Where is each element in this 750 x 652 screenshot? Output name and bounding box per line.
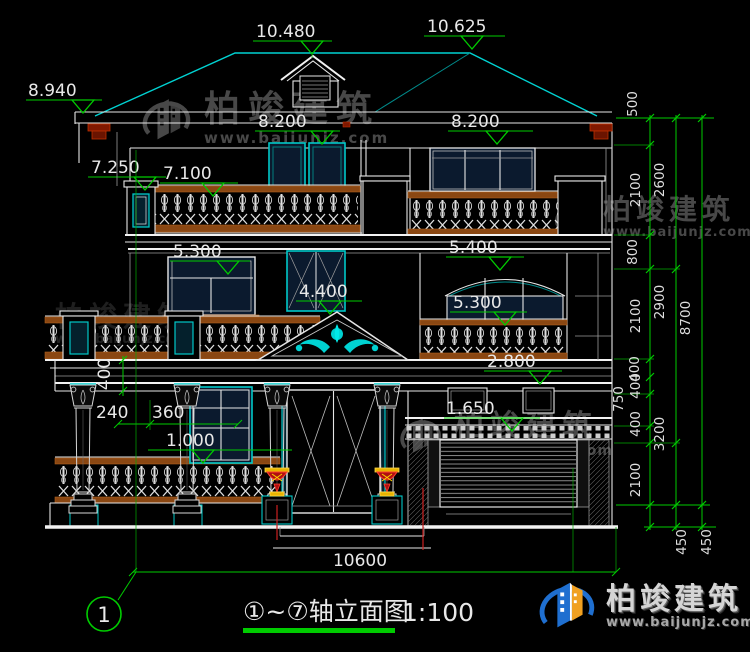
right-dimension-chains: 500 2100 800 2100 400 400 750 400 2100 2… [611, 91, 716, 555]
dim-label: 400 [628, 411, 644, 437]
dim-label: 450 [674, 529, 690, 555]
svg-text:10.625: 10.625 [427, 17, 486, 37]
balcony-door-right [309, 143, 345, 189]
third-floor-window [430, 148, 535, 192]
dim-label: 400 [628, 373, 644, 399]
garage-pilaster-right [589, 440, 609, 527]
level-f3-right: 8.200 [448, 112, 533, 144]
drawing-scale: 1:100 [402, 598, 474, 627]
dormer [281, 56, 345, 107]
dim-label: 450 [699, 529, 715, 555]
level-f2-right-top: 5.400 [446, 238, 524, 270]
svg-text:400: 400 [95, 358, 115, 390]
garage-section [405, 253, 612, 527]
svg-text:5.300: 5.300 [173, 242, 222, 262]
dim-label-total: 8700 [678, 301, 694, 335]
svg-text:5.300: 5.300 [453, 293, 502, 313]
dim-label: 2600 [652, 163, 668, 197]
company-name: 柏竣建筑 [606, 584, 750, 616]
dim-label: 2100 [628, 299, 644, 333]
balcony-pillar-3f-left [124, 181, 158, 235]
balcony-pillar-3f-right [555, 176, 605, 235]
balcony-door-left [269, 143, 305, 189]
title-underline [243, 628, 395, 633]
eave-corbel-right [590, 124, 612, 139]
svg-text:2.800: 2.800 [487, 352, 536, 372]
svg-text:8.940: 8.940 [28, 81, 77, 101]
svg-text:8.200: 8.200 [451, 112, 500, 132]
balcony-railing-3f-left [128, 185, 362, 233]
first-floor-window [190, 387, 252, 463]
svg-text:7.250: 7.250 [91, 158, 140, 178]
svg-text:5.400: 5.400 [449, 238, 498, 258]
cad-elevation-sheet: { "colors": { "background": "#000000", "… [0, 0, 750, 652]
drawing-title: ①~⑦轴立面图 [243, 597, 409, 626]
dim-label: 500 [625, 91, 641, 117]
entrance-door [282, 390, 385, 513]
level-top-right: 10.625 [424, 17, 505, 49]
balcony-pillar-2f-b [165, 311, 203, 360]
entrance-steps [273, 527, 431, 548]
eave-corbel-center [343, 122, 350, 127]
company-url: www.baijunjz.com [606, 615, 750, 630]
garage-cornice [405, 418, 612, 439]
svg-text:1.650: 1.650 [446, 399, 495, 419]
svg-text:10.480: 10.480 [256, 22, 315, 42]
dim-total-width: 10600 [333, 551, 387, 571]
company-logo-icon [538, 575, 600, 639]
garage-door [428, 440, 589, 514]
axis-number: 1 [97, 603, 110, 627]
svg-text:4.400: 4.400 [299, 282, 348, 302]
dim-label: 800 [625, 239, 641, 265]
svg-text:8.200: 8.200 [258, 112, 307, 132]
svg-text:360: 360 [152, 403, 184, 423]
garage-window-right [523, 388, 554, 413]
garage-pilaster-left [408, 440, 428, 527]
elevation-drawing: 10.480 10.625 8.940 8.200 8.200 7.250 7.… [0, 0, 750, 652]
urn-pedestal-right [372, 496, 402, 524]
balcony-pillar-2f-a [60, 311, 98, 360]
dim-label: 2100 [628, 173, 644, 207]
svg-text:1.000: 1.000 [166, 431, 215, 451]
dim-label: 750 [611, 386, 627, 412]
eave-corbel-left [88, 124, 110, 139]
third-floor [124, 140, 612, 253]
dim-label: 3200 [652, 417, 668, 451]
axis-bubble: 1 [87, 572, 136, 631]
balcony-pillar-3f-mid [360, 176, 410, 235]
level-eave-left: 8.940 [26, 81, 102, 113]
svg-text:240: 240 [96, 403, 128, 423]
title-block: ①~⑦轴立面图 1:100 [243, 597, 474, 633]
svg-text:7.100: 7.100 [163, 164, 212, 184]
dim-label: 2900 [652, 285, 668, 319]
dim-label: 2100 [628, 463, 644, 497]
second-floor-window-center [287, 251, 345, 311]
company-logo: 柏竣建筑 www.baijunjz.com [538, 575, 750, 639]
level-f3-left: 8.200 [255, 112, 340, 144]
